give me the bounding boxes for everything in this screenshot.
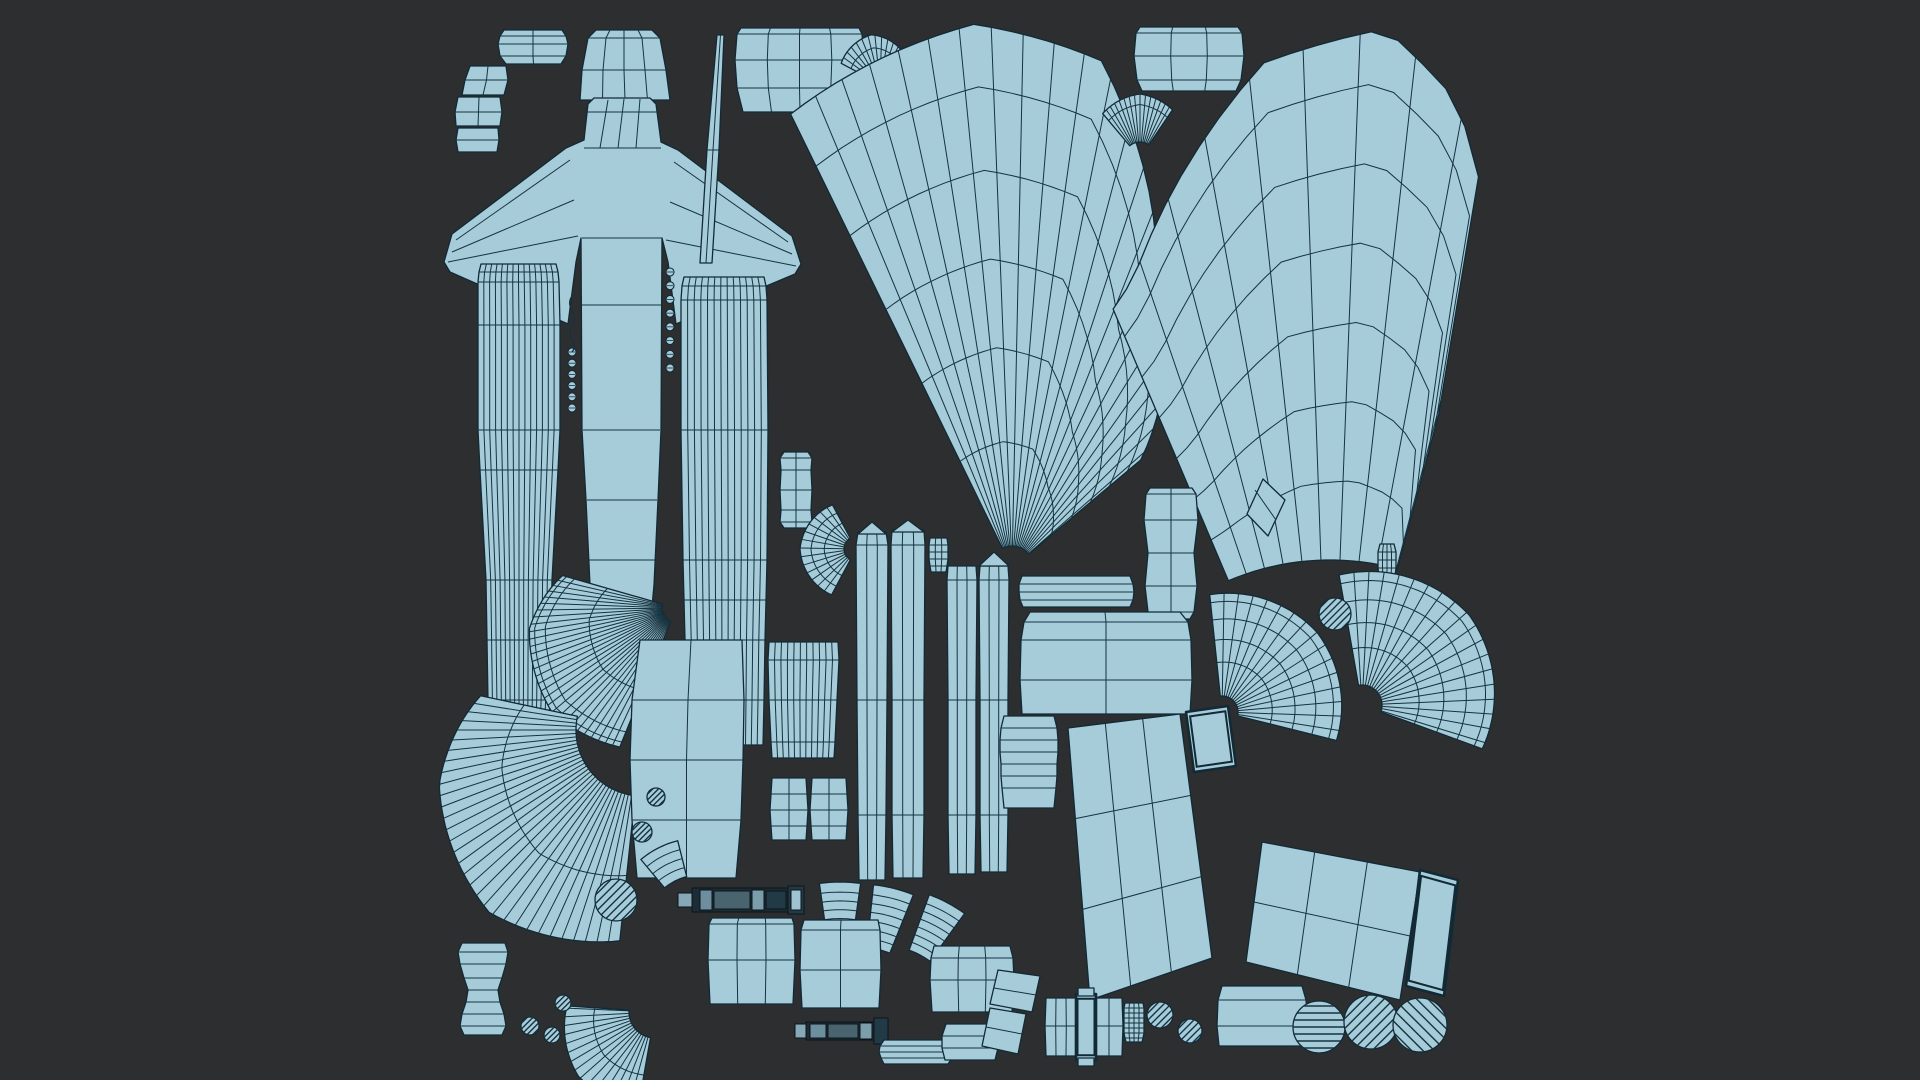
uv-island-elbow-quad-2 bbox=[982, 1008, 1026, 1054]
uv-island-protractor-fan-right bbox=[1339, 571, 1494, 748]
uv-island-plate-bottom-b bbox=[800, 920, 881, 1008]
uv-island-hbeam-right bbox=[1095, 998, 1123, 1056]
uv-island-barrel-1 bbox=[678, 886, 804, 914]
uv-island-bead-string-left bbox=[568, 348, 576, 412]
uv-island-bracket-a bbox=[1186, 706, 1236, 772]
uv-island-hbeam-left bbox=[1045, 998, 1077, 1056]
uv-island-hbeam-mid-bracket bbox=[1076, 994, 1096, 1060]
uv-atlas-stage bbox=[0, 0, 1920, 1080]
uv-island-barrel-2 bbox=[795, 1018, 888, 1044]
uv-island-bead-string-right bbox=[666, 268, 674, 372]
uv-island-flanged-rect bbox=[498, 30, 568, 64]
uv-island-cap-b bbox=[979, 552, 1009, 566]
uv-island-column-pair-b1 bbox=[947, 566, 977, 874]
uv-island-pillow-grid bbox=[1134, 27, 1244, 91]
uv-island-torso-plate bbox=[630, 640, 744, 878]
uv-atlas-image bbox=[0, 0, 1920, 1080]
uv-island-neck-hood bbox=[580, 30, 670, 100]
uv-island-vase bbox=[458, 943, 508, 1035]
uv-island-hatched-circle-s1 bbox=[1138, 993, 1182, 1037]
uv-island-striped-block bbox=[1000, 716, 1058, 808]
uv-island-hbeam-tab-bottom bbox=[1078, 1058, 1094, 1066]
uv-island-grid-square-1 bbox=[770, 778, 808, 840]
uv-island-column-pair-a2 bbox=[891, 530, 925, 878]
uv-island-notch-a2 bbox=[892, 520, 924, 532]
uv-island-plate-upper-right bbox=[1020, 612, 1192, 714]
uv-island-elbow-quad-1 bbox=[990, 970, 1040, 1012]
uv-island-dotted-strip bbox=[1124, 1003, 1144, 1042]
uv-island-stack-quad-2 bbox=[455, 97, 502, 126]
uv-island-fan-bottom-left-2 bbox=[564, 1006, 650, 1080]
uv-island-grid-square-2 bbox=[810, 778, 848, 840]
uv-island-column-right-striped-lower bbox=[768, 642, 839, 758]
uv-island-tiny-grid-a bbox=[929, 538, 948, 572]
uv-island-plate-bottom-a bbox=[708, 918, 795, 1004]
uv-island-squiggle-thread bbox=[570, 296, 575, 352]
uv-island-hatched-circle-5 bbox=[539, 1022, 566, 1049]
uv-island-h-striped-rect bbox=[1019, 576, 1134, 607]
uv-island-stack-quad-1 bbox=[462, 66, 508, 95]
uv-island-fan-big-left bbox=[791, 24, 1168, 554]
uv-island-box-trapezoid-b bbox=[1246, 842, 1420, 1000]
uv-island-bandage-rect bbox=[1144, 488, 1198, 619]
uv-island-hatched-circle-s2 bbox=[1169, 1010, 1211, 1052]
uv-island-column-pair-a1 bbox=[856, 532, 888, 880]
uv-island-notch-a1 bbox=[858, 522, 886, 534]
uv-island-box-trapezoid-a bbox=[1068, 714, 1212, 1000]
uv-island-stack-quad-3 bbox=[456, 128, 499, 152]
uv-island-hatched-circle-4 bbox=[513, 1009, 547, 1043]
uv-island-hbeam-tab-top bbox=[1078, 988, 1094, 996]
uv-island-vertical-capsule bbox=[780, 452, 812, 528]
